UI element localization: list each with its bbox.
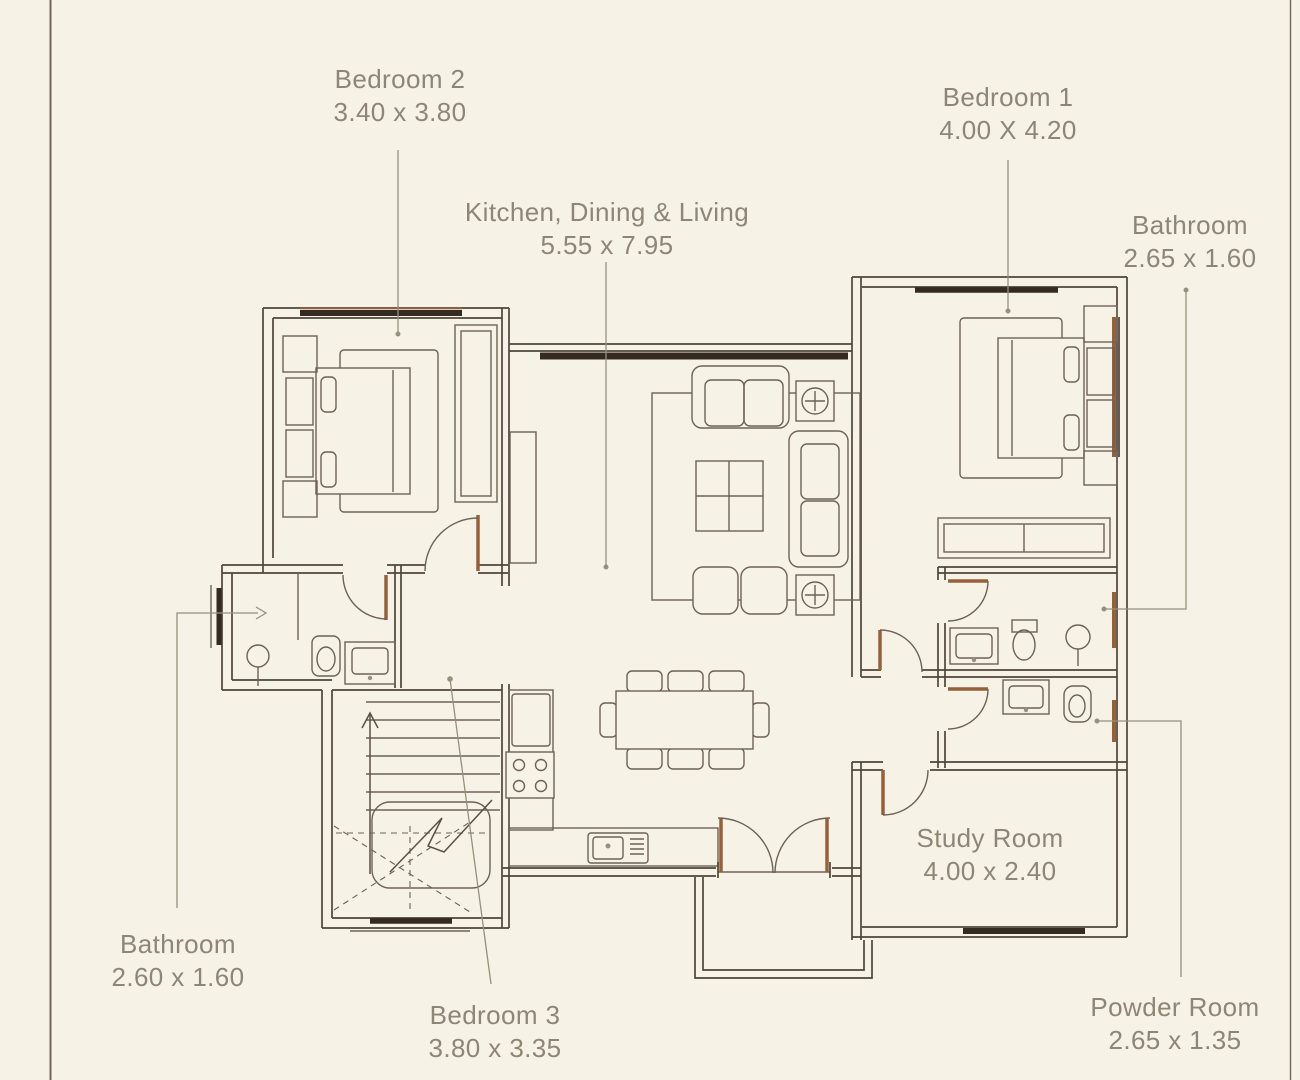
door-bathroom-right <box>948 581 988 621</box>
dining-chair <box>668 748 703 769</box>
shower-icon <box>1066 625 1090 649</box>
room-dims: 4.00 x 2.40 <box>916 855 1063 888</box>
fridge <box>512 694 550 746</box>
dining-chair <box>668 671 703 692</box>
label-bathroom-left: Bathroom 2.60 x 1.60 <box>111 928 244 994</box>
tv-cabinet <box>510 432 536 563</box>
dining-chair <box>627 748 662 769</box>
door-powder-room <box>948 689 988 729</box>
door-bathroom-left <box>343 575 386 620</box>
room-dims: 2.65 x 1.35 <box>1090 1024 1259 1057</box>
label-bathroom-right: Bathroom 2.65 x 1.60 <box>1123 209 1256 275</box>
room-dims: 2.65 x 1.60 <box>1123 242 1256 275</box>
bedroom2-furniture <box>283 325 497 517</box>
label-bedroom-3: Bedroom 3 3.80 x 3.35 <box>428 999 561 1065</box>
dining-chair <box>752 703 769 737</box>
stairs-break-line <box>390 800 492 872</box>
shower-icon <box>247 645 269 667</box>
bedroom2-nightstand <box>283 336 317 372</box>
dining-table <box>616 691 753 749</box>
label-bedroom-2: Bedroom 2 3.40 x 3.80 <box>333 63 466 129</box>
bedroom1-furniture <box>938 306 1117 558</box>
label-powder-room: Powder Room 2.65 x 1.35 <box>1090 991 1259 1057</box>
room-name: Kitchen, Dining & Living <box>465 196 749 229</box>
label-study-room: Study Room 4.00 x 2.40 <box>916 822 1063 888</box>
pouf <box>741 567 787 614</box>
bathroom-left-fixtures <box>247 573 395 686</box>
room-dims: 3.80 x 3.35 <box>428 1032 561 1065</box>
label-kitchen-dining-living: Kitchen, Dining & Living 5.55 x 7.95 <box>465 196 749 262</box>
bedroom2-nightstand <box>283 481 317 517</box>
room-name: Study Room <box>916 822 1063 855</box>
floorplan-drawing <box>0 0 1300 1080</box>
room-dims: 3.40 x 3.80 <box>333 96 466 129</box>
pouf <box>693 567 738 614</box>
powder-room-fixtures <box>1003 680 1091 722</box>
stairs <box>334 702 500 912</box>
room-dims: 2.60 x 1.60 <box>111 961 244 994</box>
floor-plan-page: { "colors": { "paper": "#f7f2e6", "wall"… <box>0 0 1300 1080</box>
living-room-furniture <box>510 366 860 615</box>
entry-porch <box>695 877 872 978</box>
bedroom1-bed <box>998 338 1084 458</box>
bedroom2-bed <box>316 368 410 494</box>
dining-chair <box>600 703 617 737</box>
stove <box>506 752 554 798</box>
room-name: Bathroom <box>1123 209 1256 242</box>
room-name: Bedroom 3 <box>428 999 561 1032</box>
sofa-top <box>692 366 789 428</box>
toilet-icon <box>312 636 340 676</box>
room-name: Powder Room <box>1090 991 1259 1024</box>
bathroom-right-fixtures <box>950 620 1090 666</box>
dining-chair <box>709 748 744 769</box>
room-name: Bathroom <box>111 928 244 961</box>
room-name: Bedroom 1 <box>939 81 1076 114</box>
room-dims: 5.55 x 7.95 <box>465 229 749 262</box>
dining-chair <box>627 671 662 692</box>
door-study-room <box>883 770 928 815</box>
dining-furniture <box>600 671 769 769</box>
label-bedroom-1: Bedroom 1 4.00 X 4.20 <box>939 81 1076 147</box>
dining-chair <box>709 671 744 692</box>
room-name: Bedroom 2 <box>333 63 466 96</box>
room-dims: 4.00 X 4.20 <box>939 114 1076 147</box>
